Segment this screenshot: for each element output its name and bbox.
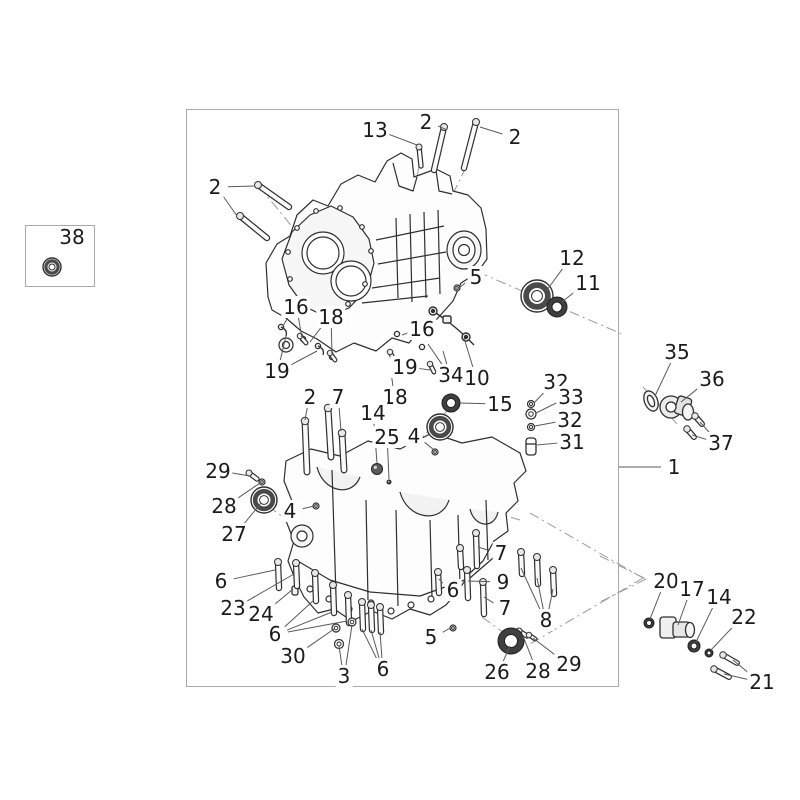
breather-housing — [660, 395, 694, 420]
breather-gasket — [641, 389, 661, 413]
inset-panel — [25, 225, 95, 287]
screw — [711, 666, 729, 677]
o-ring — [644, 618, 654, 628]
parts-diagram-page: 1322212115161819161934101815323332313536… — [0, 0, 800, 800]
washer — [688, 640, 700, 652]
o-ring — [705, 649, 713, 657]
coupling-union — [660, 617, 695, 638]
main-panel — [186, 109, 619, 687]
